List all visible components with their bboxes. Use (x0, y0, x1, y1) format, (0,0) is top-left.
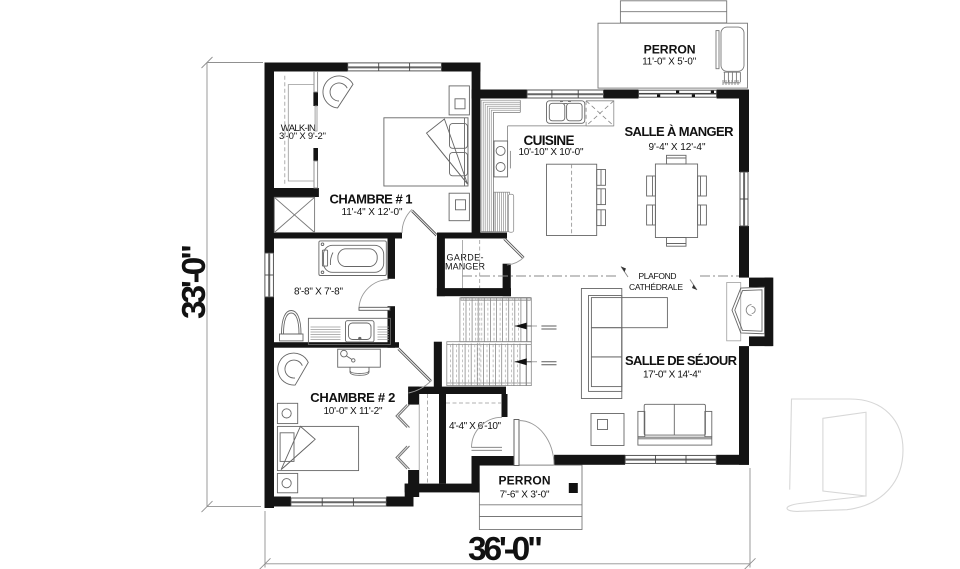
svg-text:SALLE DE SÉJOUR: SALLE DE SÉJOUR (625, 353, 738, 368)
svg-text:9'-4" X 12'-4": 9'-4" X 12'-4" (649, 142, 706, 153)
svg-text:3'-0" X 9'-2": 3'-0" X 9'-2" (279, 131, 326, 142)
svg-text:PERRON: PERRON (644, 42, 696, 56)
svg-text:10'-0" X 11'-2": 10'-0" X 11'-2" (324, 406, 383, 417)
svg-text:10'-10" X 10'-0": 10'-10" X 10'-0" (519, 147, 584, 158)
svg-text:33'-0": 33'-0" (176, 244, 213, 319)
svg-text:CATHÉDRALE: CATHÉDRALE (629, 282, 683, 292)
svg-text:CHAMBRE # 2: CHAMBRE # 2 (310, 390, 395, 405)
svg-text:PLAFOND: PLAFOND (639, 271, 677, 281)
svg-text:CHAMBRE # 1: CHAMBRE # 1 (330, 192, 413, 207)
svg-text:17'-0" X 14'-4": 17'-0" X 14'-4" (643, 370, 701, 381)
svg-text:CUISINE: CUISINE (524, 133, 575, 148)
svg-text:36'-0": 36'-0" (468, 531, 543, 568)
svg-text:8'-8" X 7'-8": 8'-8" X 7'-8" (294, 287, 343, 298)
svg-text:SALLE À MANGER: SALLE À MANGER (625, 124, 735, 139)
svg-text:11'-0" X 5'-0": 11'-0" X 5'-0" (642, 57, 697, 68)
svg-text:4'-4" X 6'-10": 4'-4" X 6'-10" (449, 421, 501, 432)
svg-text:11'-4" X 12'-0": 11'-4" X 12'-0" (342, 207, 403, 218)
svg-text:PERRON: PERRON (499, 474, 551, 488)
svg-text:7'-6" X 3'-0": 7'-6" X 3'-0" (500, 490, 550, 501)
